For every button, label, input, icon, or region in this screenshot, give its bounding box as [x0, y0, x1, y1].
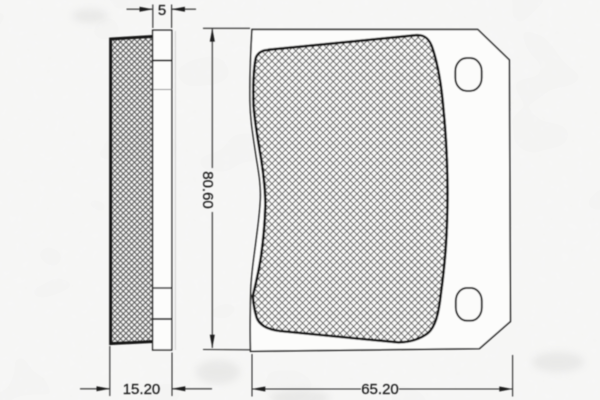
svg-text:80.60: 80.60: [199, 171, 216, 209]
svg-text:65.20: 65.20: [361, 381, 399, 398]
svg-text:5: 5: [158, 2, 166, 19]
svg-text:15.20: 15.20: [123, 381, 161, 398]
